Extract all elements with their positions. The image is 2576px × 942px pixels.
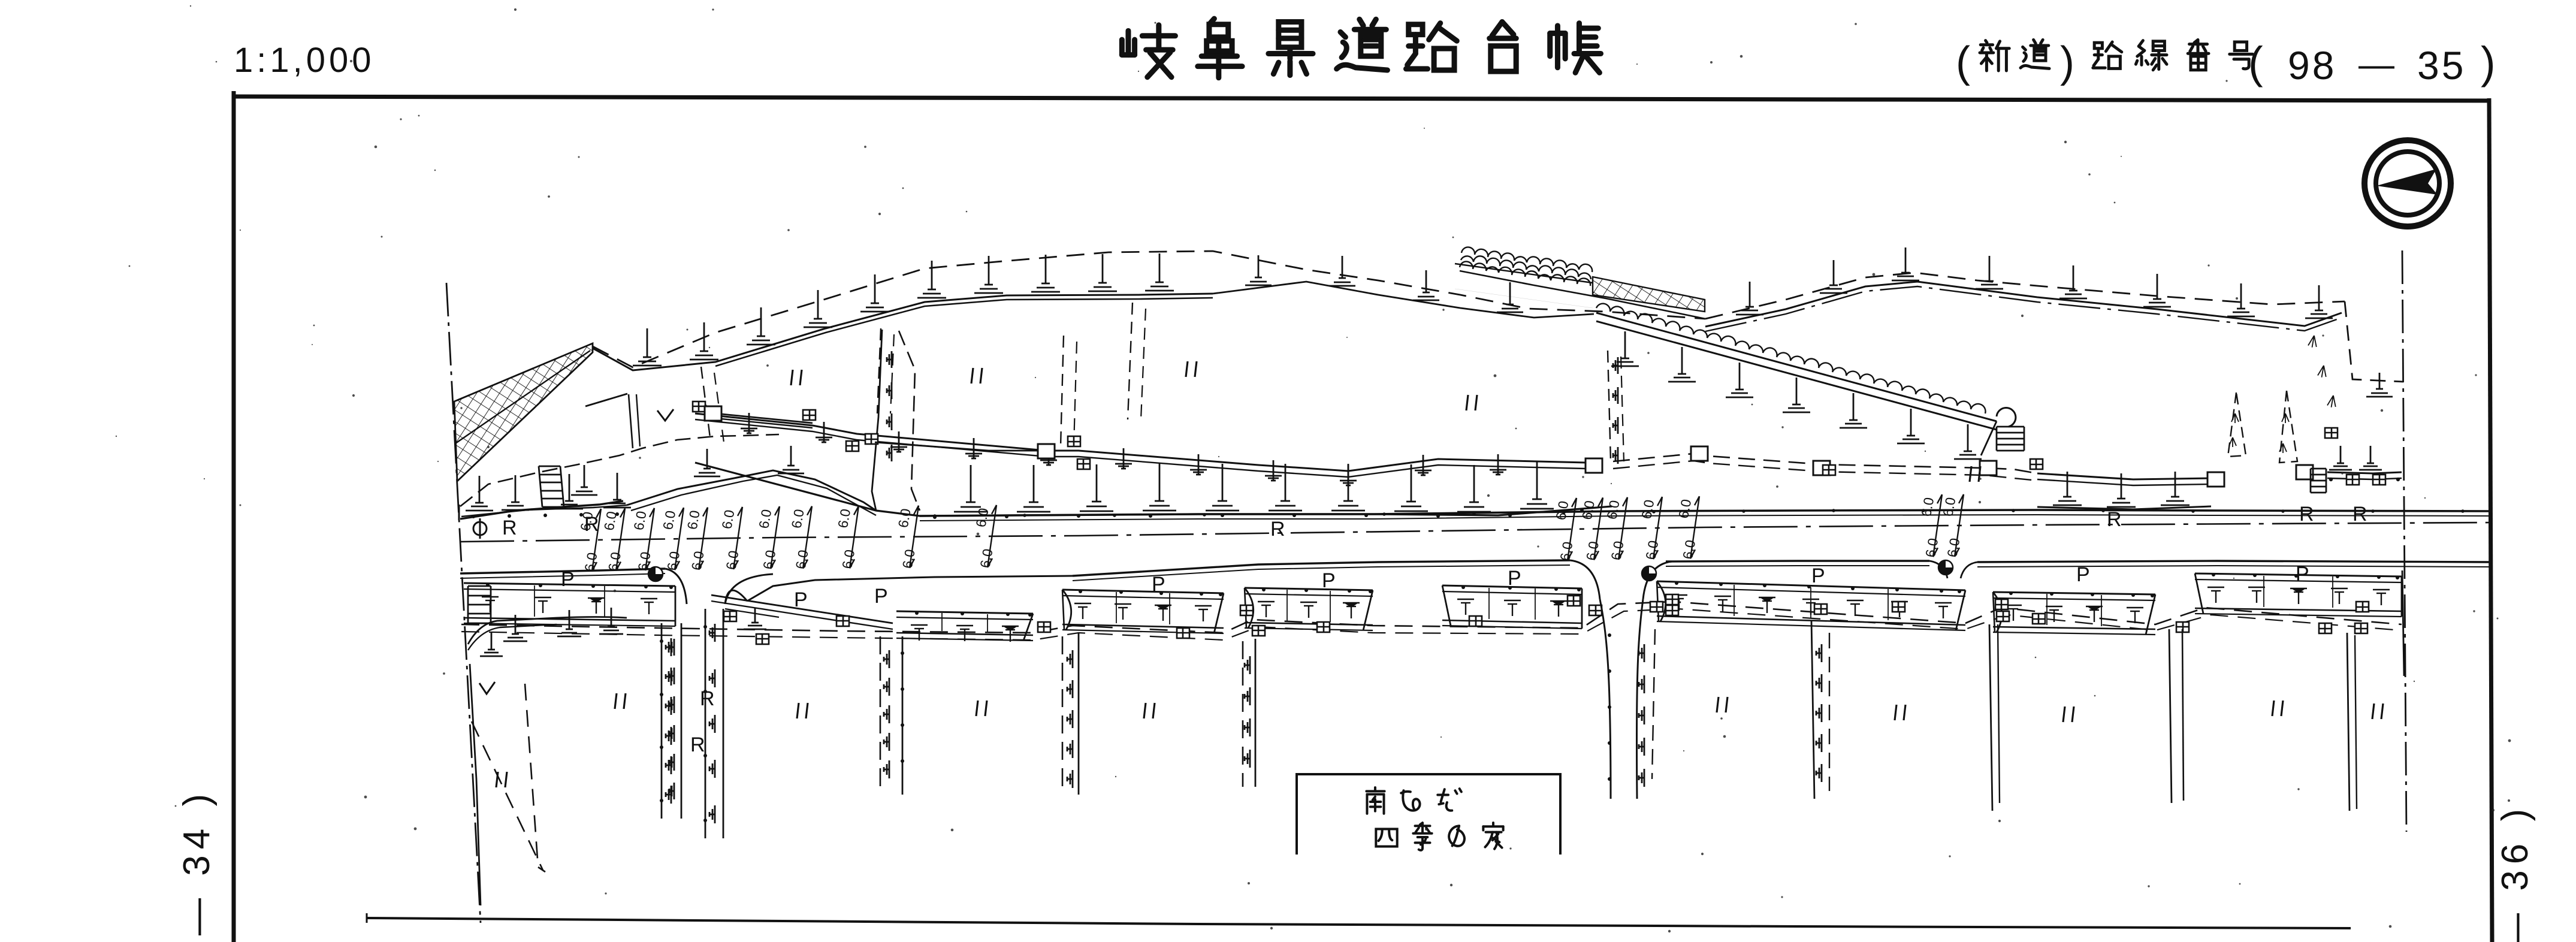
svg-text:R: R (1270, 518, 1285, 541)
svg-text:( 98 — 34 ): ( 98 — 34 ) (176, 788, 218, 942)
svg-text:6.0: 6.0 (1557, 541, 1575, 562)
svg-text:6.0: 6.0 (1918, 496, 1937, 518)
svg-text:R: R (2107, 508, 2122, 531)
svg-text:6.0: 6.0 (899, 548, 918, 570)
svg-text:6.0: 6.0 (1583, 540, 1602, 561)
svg-text:6.0: 6.0 (1680, 539, 1698, 560)
svg-text:6.0: 6.0 (973, 507, 991, 529)
svg-text:): ) (2481, 38, 2496, 87)
svg-text:R: R (584, 513, 599, 536)
svg-text:( 98 — 36 ): ( 98 — 36 ) (2495, 803, 2536, 942)
svg-text:6.0: 6.0 (581, 551, 600, 573)
svg-text:6.0: 6.0 (1642, 539, 1661, 561)
svg-text:6.0: 6.0 (1944, 537, 1962, 558)
svg-text:(: ( (2248, 38, 2263, 87)
svg-text:6.0: 6.0 (1553, 500, 1571, 521)
svg-text:6.0: 6.0 (601, 510, 620, 532)
svg-text:6.0: 6.0 (664, 550, 682, 572)
svg-text:R: R (700, 687, 715, 710)
svg-text:6.0: 6.0 (1940, 496, 1958, 518)
svg-text:6.0: 6.0 (1675, 498, 1694, 520)
svg-text:P: P (874, 585, 888, 608)
svg-text:P: P (561, 568, 575, 591)
svg-text:—: — (2358, 44, 2394, 84)
svg-text:6.0: 6.0 (895, 508, 914, 529)
svg-text:6.0: 6.0 (1922, 537, 1941, 558)
svg-text:35: 35 (2417, 43, 2466, 87)
svg-text:6.0: 6.0 (605, 551, 624, 572)
svg-text:R: R (2352, 503, 2367, 526)
svg-text:6.0: 6.0 (1608, 540, 1626, 561)
svg-text:P: P (2076, 563, 2090, 586)
svg-text:R: R (690, 733, 705, 756)
svg-text:98: 98 (2288, 43, 2336, 87)
svg-text:6.0: 6.0 (839, 548, 857, 570)
svg-text:R: R (2299, 503, 2314, 526)
svg-text:P: P (1811, 564, 1825, 587)
svg-text:R: R (502, 517, 517, 539)
svg-text:6.0: 6.0 (688, 550, 707, 572)
svg-text:6.0: 6.0 (977, 548, 995, 569)
svg-text:6.0: 6.0 (789, 508, 807, 530)
svg-text:6.0: 6.0 (760, 549, 778, 570)
svg-text:6.0: 6.0 (723, 549, 741, 571)
svg-text:6.0: 6.0 (793, 549, 811, 570)
svg-text:6.0: 6.0 (1579, 499, 1597, 521)
svg-text:6.0: 6.0 (1638, 499, 1657, 520)
svg-text:6.0: 6.0 (660, 509, 678, 531)
svg-text:(: ( (1956, 38, 1970, 86)
svg-text:): ) (2060, 38, 2074, 86)
svg-text:P: P (794, 588, 808, 611)
svg-text:6.0: 6.0 (1603, 499, 1622, 521)
svg-text:1:1,000: 1:1,000 (234, 41, 375, 80)
svg-text:6.0: 6.0 (630, 510, 649, 532)
svg-text:6.0: 6.0 (718, 509, 737, 530)
svg-text:6.0: 6.0 (756, 508, 774, 530)
svg-text:6.0: 6.0 (835, 508, 853, 529)
svg-text:6.0: 6.0 (684, 509, 703, 531)
